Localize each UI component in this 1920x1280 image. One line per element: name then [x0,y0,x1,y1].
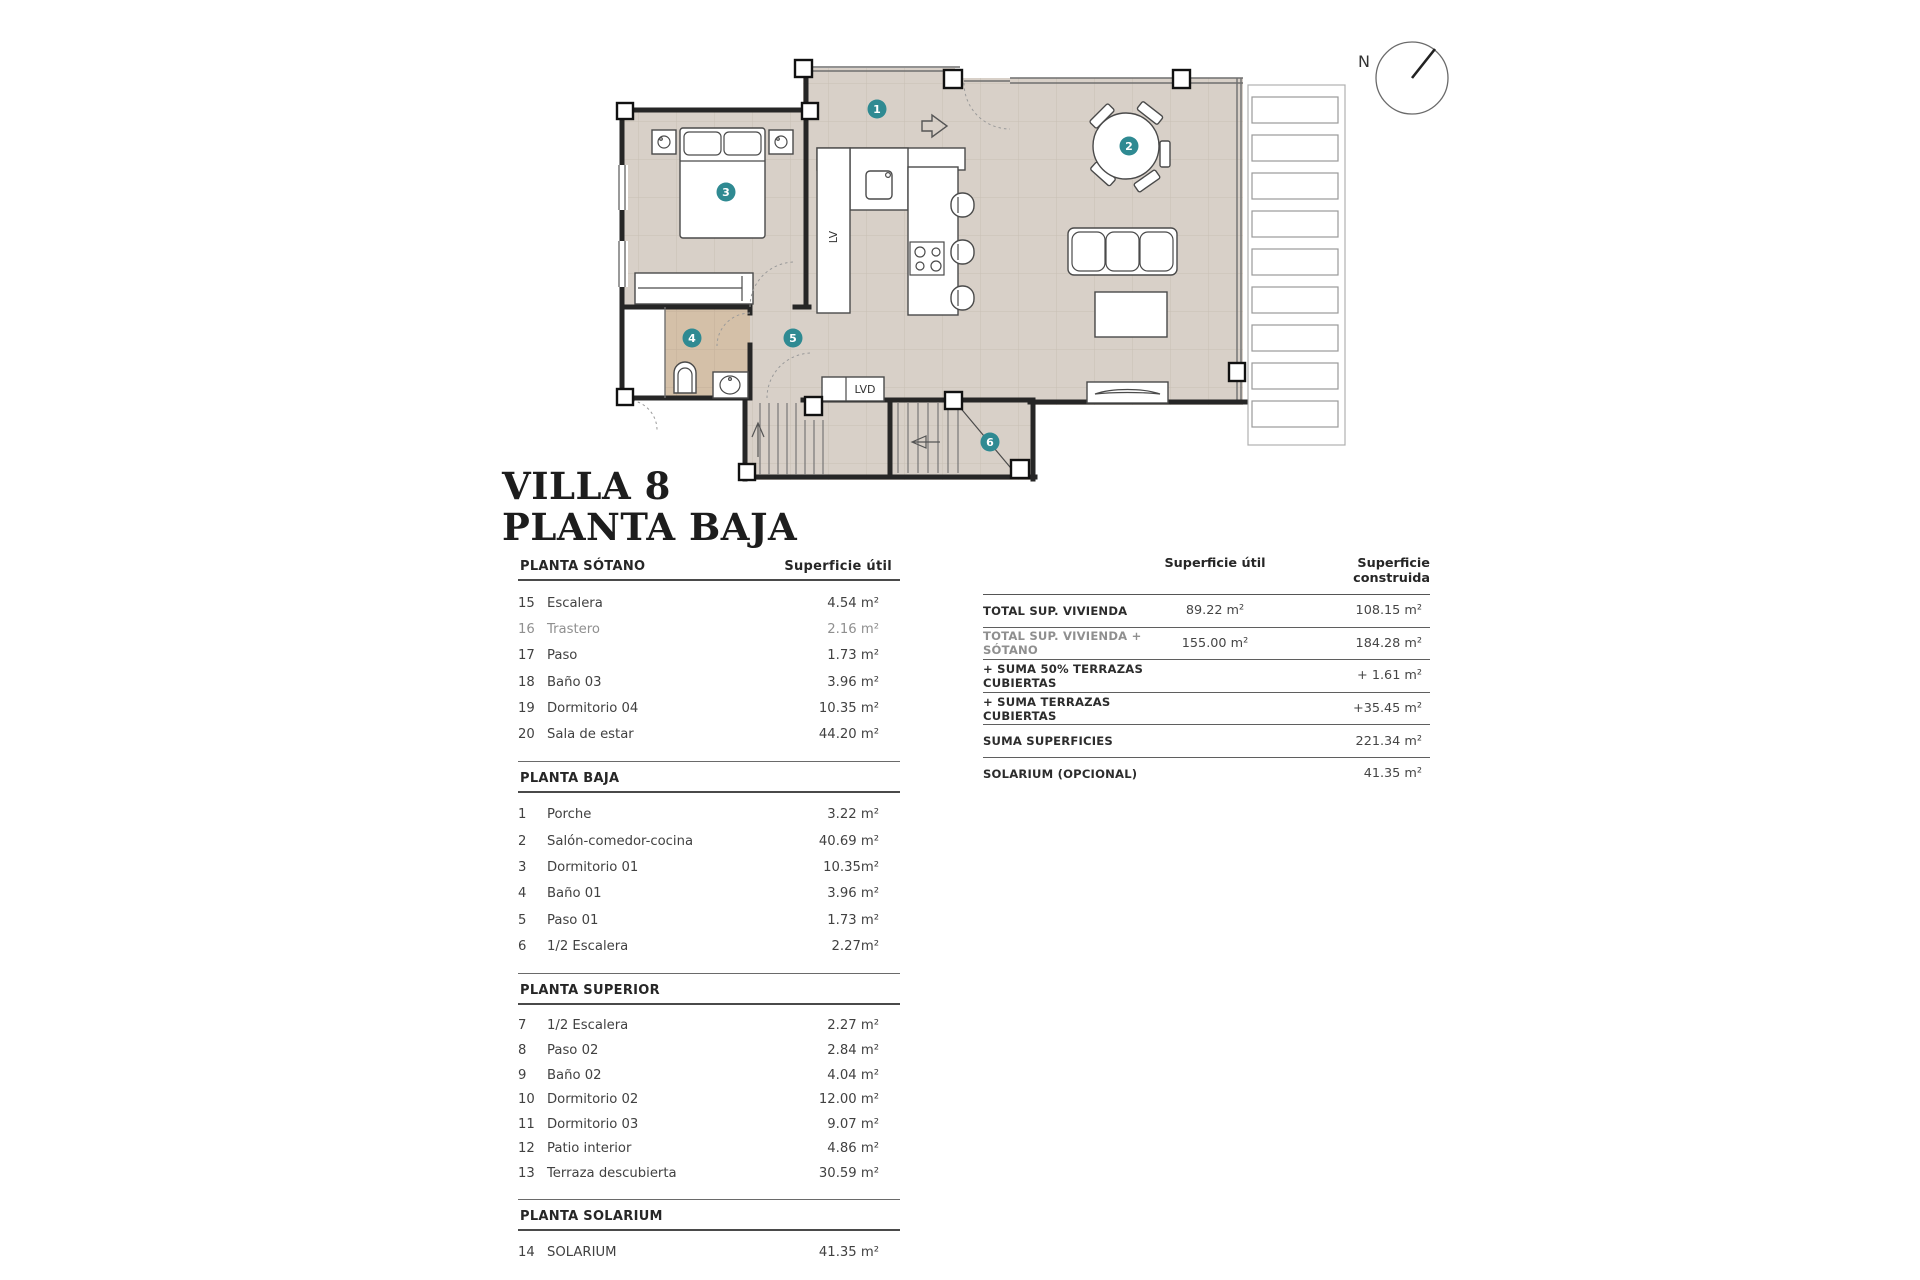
table-row: 13Terraza descubierta30.59 m² [518,1161,900,1186]
table-row: 19Dormitorio 0410.35 m² [518,695,900,721]
section-name: PLANTA SOLARIUM [520,1209,663,1224]
room-label: Trastero [547,622,827,637]
badge-1: 1 [873,103,881,116]
area-column-header: Superficie útil [784,559,898,574]
room-label: Dormitorio 03 [547,1117,827,1132]
room-label: Salón-comedor-cocina [547,834,819,849]
room-area-value: 1.73 m² [827,648,900,663]
room-number: 5 [518,913,547,928]
nightstand [652,130,676,154]
section-header: PLANTA SOLARIUM [518,1199,900,1231]
bar-stools [951,193,974,310]
kitchen-left-counter [817,148,850,313]
compass: N [1330,15,1470,130]
coffee-table [1095,292,1167,337]
table-row: 10Dormitorio 0212.00 m² [518,1087,900,1112]
badge-6: 6 [986,436,994,449]
room-number: 1 [518,807,547,822]
summary-row: TOTAL SUP. VIVIENDA89.22 m²108.15 m² [983,595,1430,628]
summary-construida-value: +35.45 m² [1280,701,1430,716]
table-row: 5Paso 011.73 m² [518,907,900,933]
summary-table: Superficie útil Superficie construida TO… [983,556,1430,790]
areas-table-section: PLANTA SÓTANOSuperficie útil15Escalera4.… [518,556,900,748]
summary-col2-header: Superficie construida [1280,556,1430,586]
room-label: 1/2 Escalera [547,1018,827,1033]
summary-row: TOTAL SUP. VIVIENDA + SÓTANO155.00 m²184… [983,628,1430,661]
room-label: Baño 01 [547,886,827,901]
section-name: PLANTA SÓTANO [520,559,645,574]
toilet [674,362,696,393]
title-line-2: PLANTA BAJA [502,507,922,548]
floor-plan-sheet: { "title": { "line1": "VILLA 8", "line2"… [0,0,1920,1280]
areas-table: PLANTA SÓTANOSuperficie útil15Escalera4.… [518,556,900,1266]
room-area-value: 2.16 m² [827,622,900,637]
kitchen-sink [866,171,892,199]
room-number: 10 [518,1092,547,1107]
room-area-value: 41.35 m² [819,1245,900,1260]
table-row: 4Baño 013.96 m² [518,881,900,907]
section-header: PLANTA SUPERIOR [518,973,900,1005]
room-number: 3 [518,860,547,875]
kitchen-island [908,167,958,315]
room-label: Dormitorio 02 [547,1092,819,1107]
room-label: Baño 02 [547,1068,827,1083]
summary-label: SOLARIUM (OPCIONAL) [983,767,1150,781]
room-number: 20 [518,727,547,742]
table-row: 1Porche3.22 m² [518,802,900,828]
louver-strip [1248,85,1345,445]
laundry: LVD [822,377,884,401]
summary-row: SUMA SUPERFICIES221.34 m² [983,725,1430,758]
room-number: 7 [518,1018,547,1033]
sofa [1068,228,1177,275]
room-label: Sala de estar [547,727,819,742]
summary-label: + SUMA 50% TERRAZAS CUBIERTAS [983,662,1150,690]
room-number: 6 [518,939,547,954]
room-number: 18 [518,675,547,690]
room-number: 4 [518,886,547,901]
summary-table-header: Superficie útil Superficie construida [983,556,1430,595]
table-row: 71/2 Escalera2.27 m² [518,1014,900,1039]
room-area-value: 10.35m² [823,860,900,875]
summary-row: SOLARIUM (OPCIONAL)41.35 m² [983,758,1430,790]
room-label: Patio interior [547,1141,827,1156]
room-label: Paso 01 [547,913,827,928]
room-area-value: 2.27m² [832,939,901,954]
room-area-value: 3.22 m² [827,807,900,822]
room-label: Terraza descubierta [547,1166,819,1181]
page-title: VILLA 8 PLANTA BAJA [502,466,922,548]
table-row: 14SOLARIUM41.35 m² [518,1240,900,1266]
room-area-value: 40.69 m² [819,834,900,849]
room-label: Paso [547,648,827,663]
room-number: 15 [518,596,547,611]
summary-label: + SUMA TERRAZAS CUBIERTAS [983,695,1150,723]
table-row: 20Sala de estar44.20 m² [518,721,900,747]
summary-util-value: 155.00 m² [1150,636,1280,651]
room-area-value: 2.84 m² [827,1043,900,1058]
nightstand [769,130,793,154]
summary-label: TOTAL SUP. VIVIENDA + SÓTANO [983,629,1150,657]
lvd-label: LVD [855,383,876,396]
summary-construida-value: + 1.61 m² [1280,668,1430,683]
room-label: Paso 02 [547,1043,827,1058]
badge-5: 5 [789,332,797,345]
summary-construida-value: 184.28 m² [1280,636,1430,651]
areas-table-section: PLANTA SOLARIUM14SOLARIUM41.35 m² [518,1199,900,1266]
room-label: Dormitorio 04 [547,701,819,716]
room-area-value: 9.07 m² [827,1117,900,1132]
floor-plan: LVD LV [600,45,1360,495]
room-area-value: 30.59 m² [819,1166,900,1181]
bed [680,128,765,238]
badge-4: 4 [688,332,696,345]
compass-needle-icon [1412,49,1435,78]
table-row: 11Dormitorio 039.07 m² [518,1112,900,1137]
table-row: 3Dormitorio 0110.35m² [518,854,900,880]
room-number: 8 [518,1043,547,1058]
room-number: 14 [518,1245,547,1260]
table-row: 16Trastero2.16 m² [518,616,900,642]
section-header: PLANTA BAJA [518,761,900,793]
room-area-value: 10.35 m² [819,701,900,716]
summary-label: TOTAL SUP. VIVIENDA [983,604,1150,618]
room-area-value: 3.96 m² [827,886,900,901]
room-number: 13 [518,1166,547,1181]
table-row: 15Escalera4.54 m² [518,590,900,616]
summary-construida-value: 41.35 m² [1280,766,1430,781]
room-area-value: 44.20 m² [819,727,900,742]
room-area-value: 2.27 m² [827,1018,900,1033]
badge-2: 2 [1125,140,1133,153]
areas-table-section: PLANTA SUPERIOR71/2 Escalera2.27 m²8Paso… [518,973,900,1186]
summary-util-value: 89.22 m² [1150,603,1280,618]
table-row: 9Baño 024.04 m² [518,1063,900,1088]
room-area-value: 4.04 m² [827,1068,900,1083]
summary-construida-value: 221.34 m² [1280,734,1430,749]
table-row: 18Baño 033.96 m² [518,669,900,695]
room-number: 16 [518,622,547,637]
north-label: N [1358,52,1370,71]
section-header: PLANTA SÓTANOSuperficie útil [518,556,900,581]
room-label: Baño 03 [547,675,827,690]
areas-table-section: PLANTA BAJA1Porche3.22 m²2Salón-comedor-… [518,761,900,960]
table-row: 12Patio interior4.86 m² [518,1137,900,1162]
room-area-value: 4.86 m² [827,1141,900,1156]
room-area-value: 3.96 m² [827,675,900,690]
closet-floor [622,307,665,398]
room-area-value: 12.00 m² [819,1092,900,1107]
summary-row: + SUMA TERRAZAS CUBIERTAS+35.45 m² [983,693,1430,726]
badge-3: 3 [722,186,730,199]
table-row: 8Paso 022.84 m² [518,1038,900,1063]
room-number: 9 [518,1068,547,1083]
room-label: Porche [547,807,827,822]
lv-label: LV [827,230,840,243]
section-name: PLANTA SUPERIOR [520,983,660,998]
title-line-1: VILLA 8 [502,466,922,507]
room-label: Dormitorio 01 [547,860,823,875]
summary-label: SUMA SUPERFICIES [983,734,1150,748]
floor-plan-drawing: LVD LV [600,45,1360,495]
summary-col1-header: Superficie útil [1150,556,1280,586]
room-label: SOLARIUM [547,1245,819,1260]
room-label: 1/2 Escalera [547,939,832,954]
table-row: 2Salón-comedor-cocina40.69 m² [518,828,900,854]
summary-row: + SUMA 50% TERRAZAS CUBIERTAS+ 1.61 m² [983,660,1430,693]
room-number: 19 [518,701,547,716]
room-area-value: 1.73 m² [827,913,900,928]
room-number: 2 [518,834,547,849]
table-row: 17Paso1.73 m² [518,643,900,669]
summary-construida-value: 108.15 m² [1280,603,1430,618]
section-name: PLANTA BAJA [520,771,619,786]
room-number: 12 [518,1141,547,1156]
room-number: 17 [518,648,547,663]
room-number: 11 [518,1117,547,1132]
table-row: 61/2 Escalera2.27m² [518,933,900,959]
room-area-value: 4.54 m² [827,596,900,611]
room-label: Escalera [547,596,827,611]
